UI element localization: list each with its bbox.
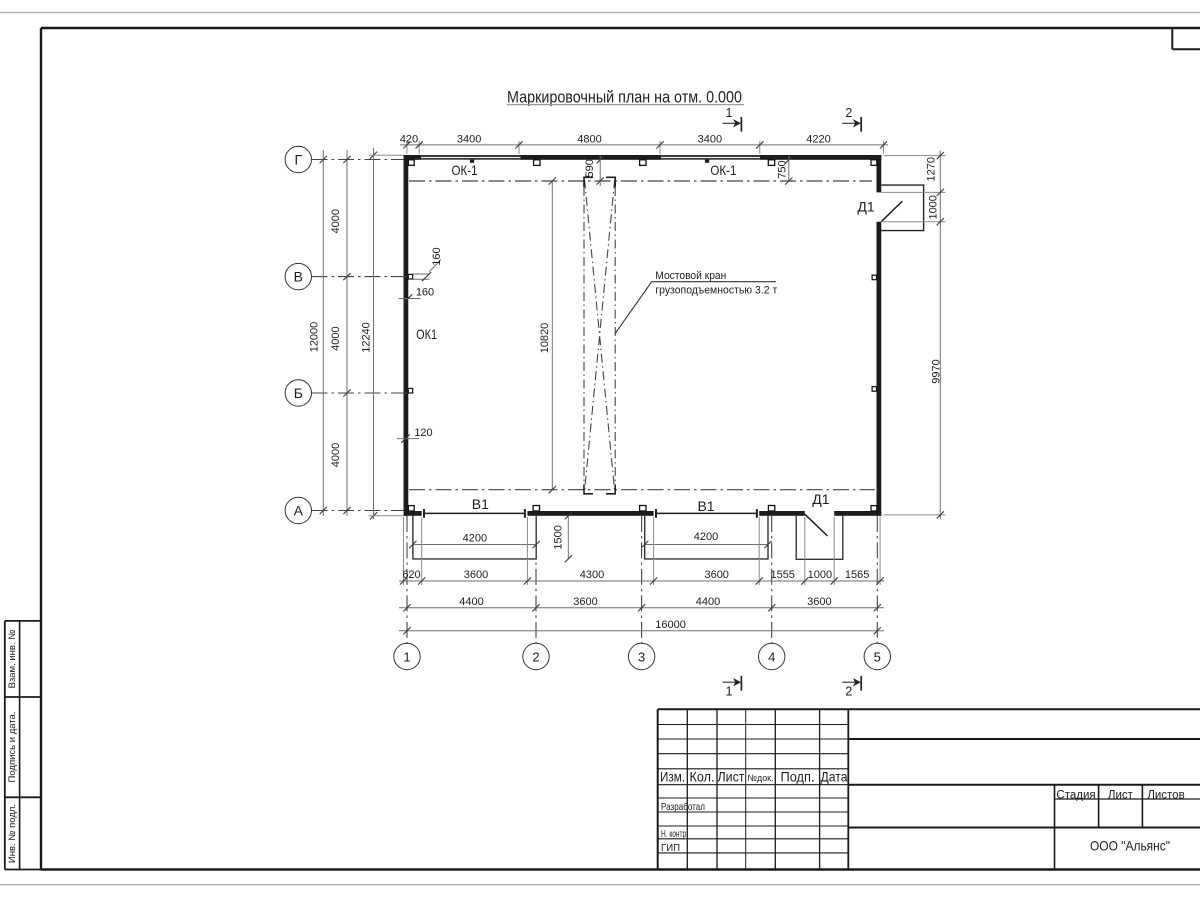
svg-text:Инв. № подл.: Инв. № подл. — [7, 804, 18, 863]
svg-text:Дата: Дата — [821, 770, 848, 785]
svg-text:В1: В1 — [697, 498, 714, 514]
svg-text:1500: 1500 — [552, 525, 564, 549]
svg-text:В1: В1 — [472, 496, 489, 512]
svg-text:12000: 12000 — [309, 322, 321, 353]
svg-text:Маркировочный план на отм. 0.0: Маркировочный план на отм. 0.000 — [507, 87, 742, 106]
svg-text:160: 160 — [416, 287, 434, 299]
svg-text:Д1: Д1 — [857, 199, 874, 215]
svg-text:Г: Г — [295, 152, 303, 168]
svg-text:4220: 4220 — [806, 133, 830, 145]
svg-text:Лист: Лист — [1108, 790, 1134, 802]
svg-text:Н. контр.: Н. контр. — [661, 828, 688, 840]
svg-text:Изм.: Изм. — [660, 770, 685, 785]
svg-text:3400: 3400 — [457, 133, 481, 145]
svg-text:Разработал: Разработал — [661, 801, 705, 813]
svg-text:Листов: Листов — [1147, 790, 1184, 802]
svg-text:620: 620 — [402, 569, 420, 581]
svg-text:Подпись и дата.: Подпись и дата. — [7, 712, 18, 783]
svg-text:3400: 3400 — [698, 133, 722, 145]
svg-text:10820: 10820 — [539, 323, 551, 354]
svg-text:1: 1 — [403, 649, 410, 664]
svg-text:Кол.: Кол. — [690, 770, 715, 785]
svg-text:4000: 4000 — [330, 443, 342, 467]
svg-text:4800: 4800 — [577, 133, 601, 145]
svg-text:2: 2 — [845, 685, 852, 699]
svg-text:3600: 3600 — [807, 596, 831, 608]
svg-text:4000: 4000 — [330, 209, 342, 233]
svg-text:Подп.: Подп. — [781, 770, 815, 785]
svg-text:ГИП: ГИП — [661, 842, 680, 854]
svg-text:9970: 9970 — [931, 359, 943, 383]
svg-text:5: 5 — [874, 649, 881, 664]
svg-text:№док.: №док. — [748, 773, 774, 784]
svg-text:Стадия: Стадия — [1056, 790, 1095, 802]
svg-text:160: 160 — [431, 247, 443, 265]
svg-text:Мостовой кран: Мостовой кран — [655, 270, 726, 282]
svg-text:120: 120 — [414, 427, 432, 439]
svg-text:1555: 1555 — [770, 569, 794, 581]
svg-text:1: 1 — [726, 685, 733, 699]
svg-text:3600: 3600 — [573, 596, 597, 608]
svg-text:4300: 4300 — [580, 569, 604, 581]
svg-text:1270: 1270 — [925, 157, 937, 181]
svg-text:12240: 12240 — [361, 322, 373, 353]
svg-text:1000: 1000 — [927, 195, 939, 219]
svg-text:4: 4 — [768, 649, 775, 664]
svg-text:590: 590 — [584, 159, 596, 177]
svg-text:В: В — [294, 269, 303, 285]
svg-text:1000: 1000 — [808, 569, 832, 581]
svg-text:3600: 3600 — [704, 569, 728, 581]
svg-text:2: 2 — [532, 649, 539, 664]
svg-text:16000: 16000 — [655, 619, 686, 631]
svg-text:А: А — [294, 503, 304, 519]
svg-text:3: 3 — [638, 649, 645, 664]
svg-text:Лист: Лист — [718, 770, 745, 785]
svg-text:4200: 4200 — [694, 531, 718, 543]
svg-text:ОК-1: ОК-1 — [452, 162, 478, 178]
svg-text:1: 1 — [726, 106, 733, 120]
svg-text:3600: 3600 — [464, 569, 488, 581]
svg-text:Взам. инв. №: Взам. инв. № — [7, 630, 18, 689]
svg-text:ОК-1: ОК-1 — [710, 162, 736, 178]
svg-text:2: 2 — [845, 106, 852, 120]
svg-text:ООО "Альянс": ООО "Альянс" — [1090, 838, 1170, 854]
svg-text:4400: 4400 — [459, 596, 483, 608]
svg-text:1565: 1565 — [845, 569, 869, 581]
svg-text:ОК1: ОК1 — [416, 326, 437, 342]
svg-text:420: 420 — [400, 133, 418, 145]
svg-text:4000: 4000 — [330, 326, 342, 350]
svg-text:Д1: Д1 — [812, 491, 829, 507]
svg-text:750: 750 — [776, 160, 788, 178]
svg-text:Б: Б — [294, 385, 303, 401]
svg-text:грузоподъемностью 3.2 т: грузоподъемностью 3.2 т — [655, 284, 777, 296]
svg-text:4200: 4200 — [463, 532, 487, 544]
svg-text:4400: 4400 — [696, 596, 720, 608]
